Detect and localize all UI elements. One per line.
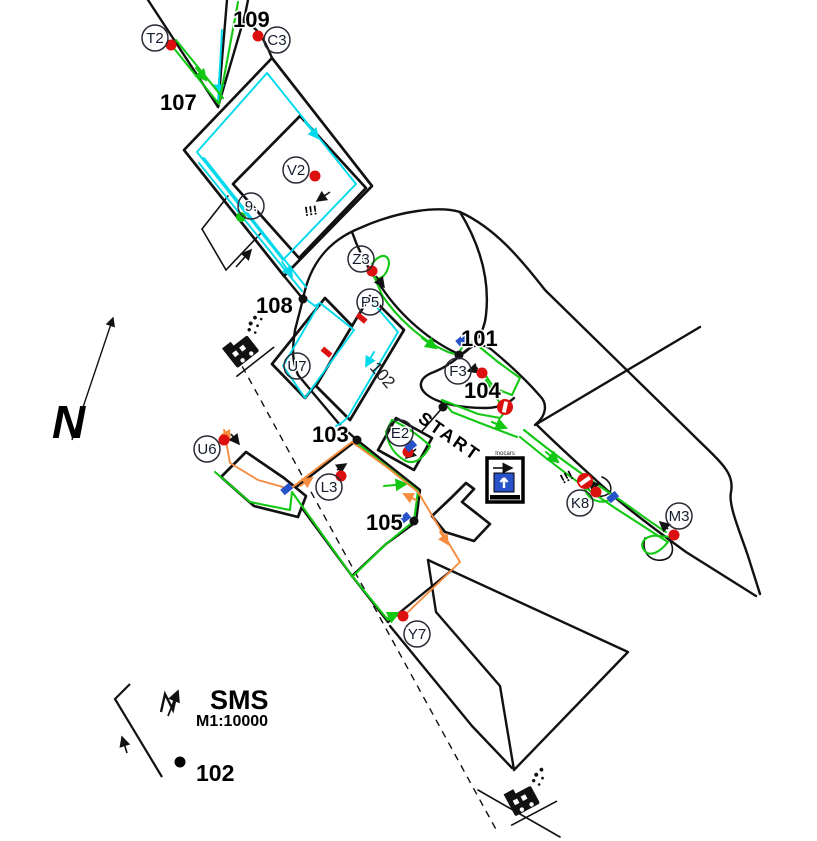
control-label: P5 <box>361 294 379 311</box>
checkpoint-108: 108 <box>256 293 293 318</box>
junction-dot-103 <box>353 436 362 445</box>
punch-dot-c3 <box>253 31 264 42</box>
train-smoke <box>528 767 549 788</box>
train-icon <box>214 313 281 377</box>
orienteering-map-page: T2 C3 V2 9. Z3 P5 U7 F3 E2 U6 L3 K8 M3 Y… <box>0 0 817 841</box>
arrow-f3-icon <box>468 368 478 371</box>
orange-arrow-105 <box>404 494 416 500</box>
control-label: L3 <box>321 479 338 496</box>
control-m3: M3 <box>666 503 692 529</box>
building-u6 <box>221 452 306 517</box>
control-y7: Y7 <box>404 621 430 647</box>
legend: SMS M1:10000 102 <box>115 684 269 786</box>
road-field-west <box>428 560 514 770</box>
checkpoint-104: 104 <box>464 378 501 403</box>
control-label: Z3 <box>352 251 370 268</box>
control-label: C3 <box>267 32 286 49</box>
map-scale: M1:10000 <box>196 713 268 730</box>
info-box-bar <box>490 495 520 500</box>
checkpoint-107: 107 <box>160 90 197 115</box>
legend-control-dot <box>175 757 186 768</box>
control-label: U7 <box>287 358 306 375</box>
start-dot <box>439 403 448 412</box>
junction-dot-108 <box>299 295 308 304</box>
control-label: 9. <box>245 198 258 215</box>
control-label: K8 <box>571 495 589 512</box>
legend-arrow-icon <box>122 737 127 753</box>
info-box-label: Inocars <box>495 451 515 457</box>
arrow-u6-icon <box>231 434 239 444</box>
control-label: T2 <box>146 30 164 47</box>
punch-dot-m3 <box>669 530 680 541</box>
one-way-sign-icon <box>494 473 514 492</box>
punch-dot-y7 <box>398 611 409 622</box>
green-arrow-104 <box>492 422 506 428</box>
warning-v2-label: !!! <box>303 202 318 219</box>
control-z3: Z3 <box>348 246 374 272</box>
road-stub-2 <box>202 229 226 270</box>
control-label: U6 <box>197 441 216 458</box>
punch-dot-f3 <box>477 368 488 379</box>
checkpoint-109: 109 <box>233 7 270 32</box>
info-sign-box: Inocars <box>487 451 523 502</box>
green-k8-m3-back <box>524 430 666 532</box>
checkpoint-101: 101 <box>461 326 498 351</box>
control-label: V2 <box>287 162 305 179</box>
train-icon <box>494 767 560 825</box>
orange-route <box>224 430 460 614</box>
legend-road-sample <box>115 684 162 777</box>
no-entry-sign-k8-icon <box>577 473 593 489</box>
course-map: T2 C3 V2 9. Z3 P5 U7 F3 E2 U6 L3 K8 M3 Y… <box>0 0 817 841</box>
track-orange <box>224 430 460 614</box>
junction-dot-105 <box>410 517 419 526</box>
legend-control-number: 102 <box>196 760 234 786</box>
punch-dot-u6 <box>219 435 230 446</box>
green-arrow-103 <box>384 484 406 486</box>
control-k8: K8 <box>567 490 593 516</box>
control-t2: T2 <box>142 25 168 51</box>
legend-north-icon <box>161 691 178 716</box>
control-label: Y7 <box>408 626 426 643</box>
road-field-east <box>428 560 628 770</box>
checkpoint-103: 103 <box>312 422 349 447</box>
road-crossing <box>535 327 700 425</box>
legend-north-zigzag <box>161 692 177 712</box>
north-arrow: N <box>52 318 113 448</box>
control-u6: U6 <box>194 436 220 462</box>
north-letter: N <box>52 396 86 448</box>
train-body <box>506 786 540 817</box>
control-label: M3 <box>669 508 690 525</box>
control-label: E2 <box>391 425 409 442</box>
punch-dot-v2 <box>310 171 321 182</box>
road-stub-3 <box>226 232 262 270</box>
map-title: SMS <box>210 685 269 715</box>
punch-dot-k8 <box>591 487 602 498</box>
control-l3: L3 <box>316 474 342 500</box>
road-stub-1 <box>202 196 228 229</box>
checkpoint-105: 105 <box>366 510 403 535</box>
arrow-l3-icon <box>337 464 346 470</box>
